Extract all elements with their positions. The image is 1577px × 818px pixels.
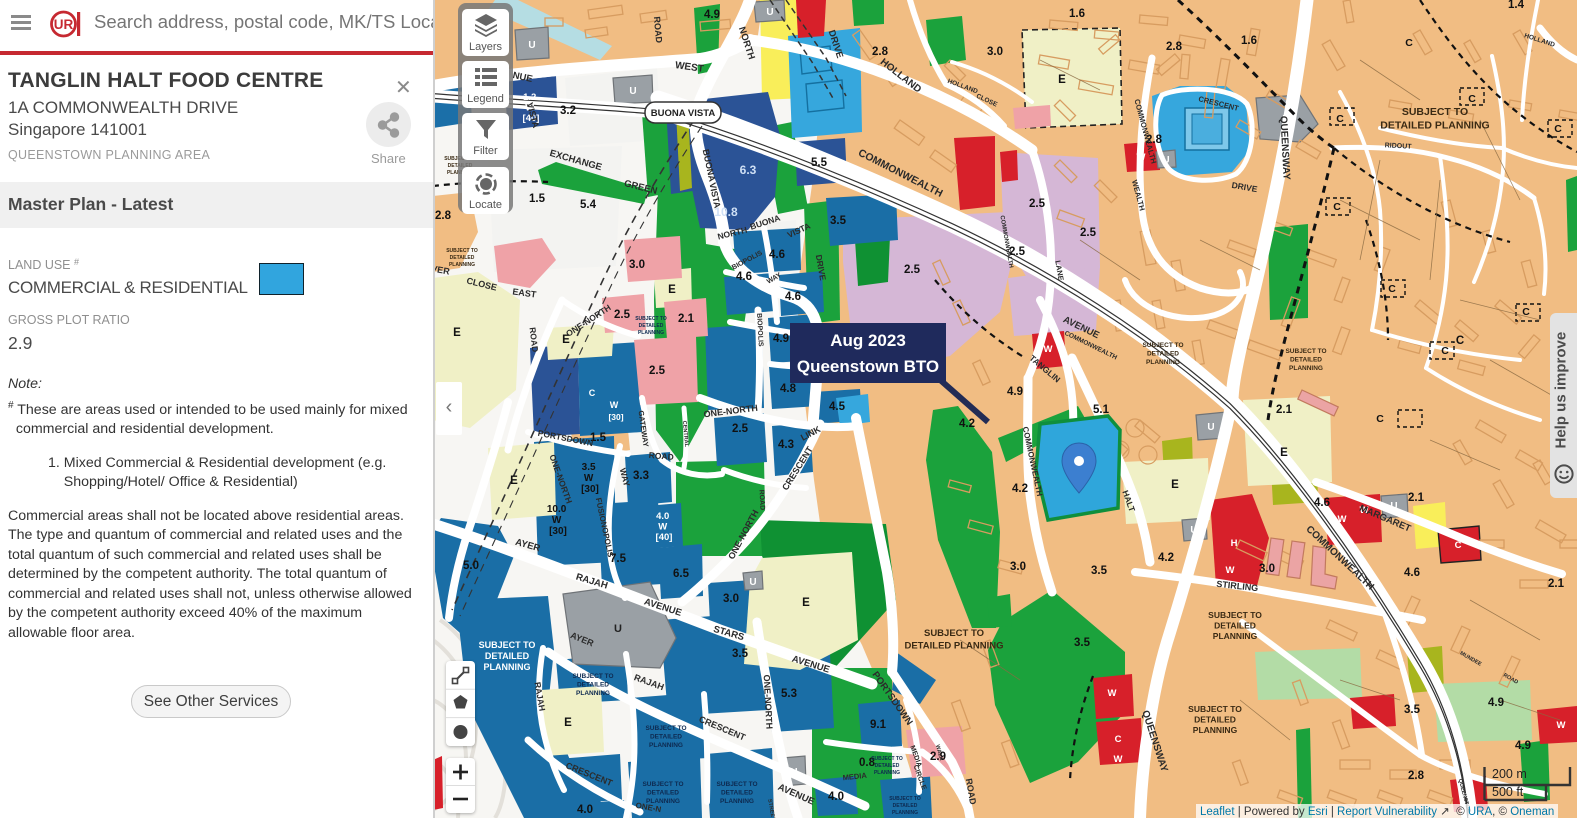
svg-text:2.1: 2.1 (1408, 492, 1425, 504)
svg-text:4.9: 4.9 (1007, 386, 1023, 398)
svg-text:3.5: 3.5 (732, 648, 749, 660)
svg-text:SUBJECT TODETAILEDPLANNING: SUBJECT TODETAILEDPLANNING (642, 781, 683, 805)
svg-text:2.5: 2.5 (1080, 227, 1097, 239)
svg-text:2.8: 2.8 (1166, 41, 1183, 53)
svg-text:E: E (564, 717, 572, 729)
svg-text:5.3: 5.3 (781, 688, 797, 700)
svg-text:SUBJECT TODETAILEDPLANNING: SUBJECT TODETAILEDPLANNING (1208, 610, 1262, 641)
svg-text:UR: UR (54, 17, 74, 32)
svg-text:U: U (1207, 422, 1214, 433)
svg-text:[30]: [30] (608, 412, 623, 422)
svg-text:SUBJECT TODETAILEDPLANNING: SUBJECT TODETAILEDPLANNING (1188, 704, 1242, 735)
svg-text:W: W (1137, 152, 1146, 163)
svg-text:2.8: 2.8 (872, 46, 889, 58)
svg-text:4.2: 4.2 (959, 418, 975, 430)
svg-text:4.6: 4.6 (1314, 497, 1330, 509)
svg-text:U: U (766, 7, 773, 18)
svg-text:4.9: 4.9 (773, 333, 789, 345)
svg-text:C: C (1456, 335, 1464, 347)
svg-text:1.6: 1.6 (1069, 8, 1085, 20)
svg-text:C: C (1441, 345, 1449, 357)
svg-text:C: C (1554, 123, 1562, 135)
svg-text:9.1: 9.1 (870, 719, 887, 731)
svg-text:BUONA VISTA: BUONA VISTA (651, 108, 716, 119)
svg-text:4.5: 4.5 (829, 401, 846, 413)
svg-text:E: E (668, 284, 676, 296)
svg-text:W: W (1338, 514, 1347, 525)
svg-text:4.3: 4.3 (778, 439, 794, 451)
svg-text:2.1: 2.1 (1276, 404, 1293, 416)
svg-text:SUBJECT TODETAILEDPLANNING: SUBJECT TODETAILEDPLANNING (572, 673, 613, 697)
svg-text:2.5: 2.5 (732, 423, 749, 435)
svg-text:C: C (1455, 540, 1462, 551)
svg-text:3.0: 3.0 (629, 259, 645, 271)
svg-text:U: U (528, 40, 535, 51)
svg-text:4.6: 4.6 (736, 271, 752, 283)
svg-text:3.5: 3.5 (830, 215, 847, 227)
svg-text:4.8: 4.8 (780, 383, 797, 395)
svg-text:SUBJECT TODETAILEDPLANNING: SUBJECT TODETAILEDPLANNING (1142, 342, 1183, 366)
svg-text:SUBJECT TODETAILEDPLANNING: SUBJECT TODETAILEDPLANNING (889, 796, 921, 816)
svg-text:SUBJECT TODETAILEDPLANNING: SUBJECT TODETAILEDPLANNING (635, 316, 667, 336)
svg-text:E: E (802, 597, 810, 609)
svg-text:C: C (1522, 306, 1530, 318)
svg-text:4.9: 4.9 (1488, 697, 1504, 709)
svg-text:1.6: 1.6 (1241, 35, 1257, 47)
svg-text:4.6: 4.6 (1404, 567, 1420, 579)
svg-text:W: W (1044, 344, 1053, 355)
svg-text:4.0: 4.0 (577, 804, 593, 816)
svg-text:2.5: 2.5 (904, 264, 921, 276)
svg-text:5.0: 5.0 (463, 560, 479, 572)
svg-text:SUBJECT TODETAILEDPLANNING: SUBJECT TODETAILEDPLANNING (446, 248, 478, 268)
svg-text:1.5: 1.5 (529, 193, 546, 205)
svg-text:C: C (589, 388, 596, 398)
svg-text:SUBJECT TODETAILEDPLANNING: SUBJECT TODETAILEDPLANNING (716, 781, 757, 805)
svg-text:2.1: 2.1 (678, 313, 695, 325)
svg-text:2.1: 2.1 (1548, 578, 1565, 590)
svg-text:SUBJECT TODETAILEDPLANNING: SUBJECT TODETAILEDPLANNING (479, 640, 536, 672)
svg-text:C: C (1388, 283, 1396, 295)
svg-text:3.0: 3.0 (987, 46, 1003, 58)
svg-text:6.3: 6.3 (740, 163, 757, 177)
svg-text:SUBJECT TODETAILEDPLANNING: SUBJECT TODETAILEDPLANNING (1285, 348, 1326, 372)
svg-text:3.0: 3.0 (1010, 561, 1026, 573)
svg-text:H: H (1231, 538, 1238, 549)
svg-text:E: E (510, 475, 518, 487)
svg-text:2.5: 2.5 (614, 309, 631, 321)
svg-text:3.3: 3.3 (633, 470, 649, 482)
svg-text:4.9: 4.9 (704, 9, 720, 21)
svg-text:C: C (1115, 734, 1122, 745)
svg-text:3.5: 3.5 (1404, 704, 1421, 716)
svg-text:2.8: 2.8 (1408, 770, 1425, 782)
svg-text:C: C (1468, 93, 1476, 105)
svg-text:W: W (1557, 720, 1566, 731)
svg-text:5.5: 5.5 (811, 157, 828, 169)
svg-text:4.2: 4.2 (1158, 552, 1174, 564)
svg-text:U: U (749, 577, 756, 588)
svg-text:5.1: 5.1 (1093, 404, 1110, 416)
svg-text:5.4: 5.4 (580, 199, 597, 211)
svg-text:SUBJECT TODETAILEDPLANNING: SUBJECT TODETAILEDPLANNING (871, 756, 903, 776)
svg-text:4.6: 4.6 (785, 291, 801, 303)
svg-text:U: U (614, 623, 622, 635)
svg-text:3.0: 3.0 (1259, 563, 1275, 575)
svg-text:C: C (1336, 113, 1344, 125)
svg-text:C: C (1376, 413, 1384, 425)
svg-text:W: W (1226, 565, 1235, 576)
svg-text:E: E (1058, 74, 1066, 86)
svg-text:3.0: 3.0 (723, 593, 739, 605)
svg-text:SUBJECT TODETAILEDPLANNING: SUBJECT TODETAILEDPLANNING (645, 725, 686, 749)
svg-text:RIDOUT: RIDOUT (1384, 142, 1412, 150)
svg-text:6.5: 6.5 (673, 568, 690, 580)
svg-text:C: C (1333, 201, 1341, 213)
svg-text:W: W (1114, 754, 1123, 765)
svg-text:U: U (629, 86, 636, 97)
svg-text:4.6: 4.6 (769, 249, 785, 261)
svg-text:1.4: 1.4 (1508, 0, 1525, 11)
svg-text:W: W (610, 400, 619, 410)
svg-text:4.2: 4.2 (1012, 483, 1028, 495)
svg-text:W: W (1108, 688, 1117, 699)
svg-text:ROAD: ROAD (757, 489, 765, 510)
svg-text:2.5: 2.5 (649, 365, 666, 377)
svg-text:C: C (1405, 37, 1413, 49)
svg-text:E: E (1171, 479, 1179, 491)
svg-text:E: E (453, 327, 461, 339)
svg-text:4.9: 4.9 (1515, 740, 1531, 752)
svg-text:2.5: 2.5 (1029, 198, 1046, 210)
svg-text:2.8: 2.8 (435, 210, 452, 222)
svg-text:3.2: 3.2 (560, 105, 576, 117)
svg-text:E: E (1280, 447, 1288, 459)
svg-text:4.0: 4.0 (828, 791, 844, 803)
svg-text:3.5: 3.5 (1091, 565, 1108, 577)
svg-text:3.5: 3.5 (1074, 637, 1091, 649)
